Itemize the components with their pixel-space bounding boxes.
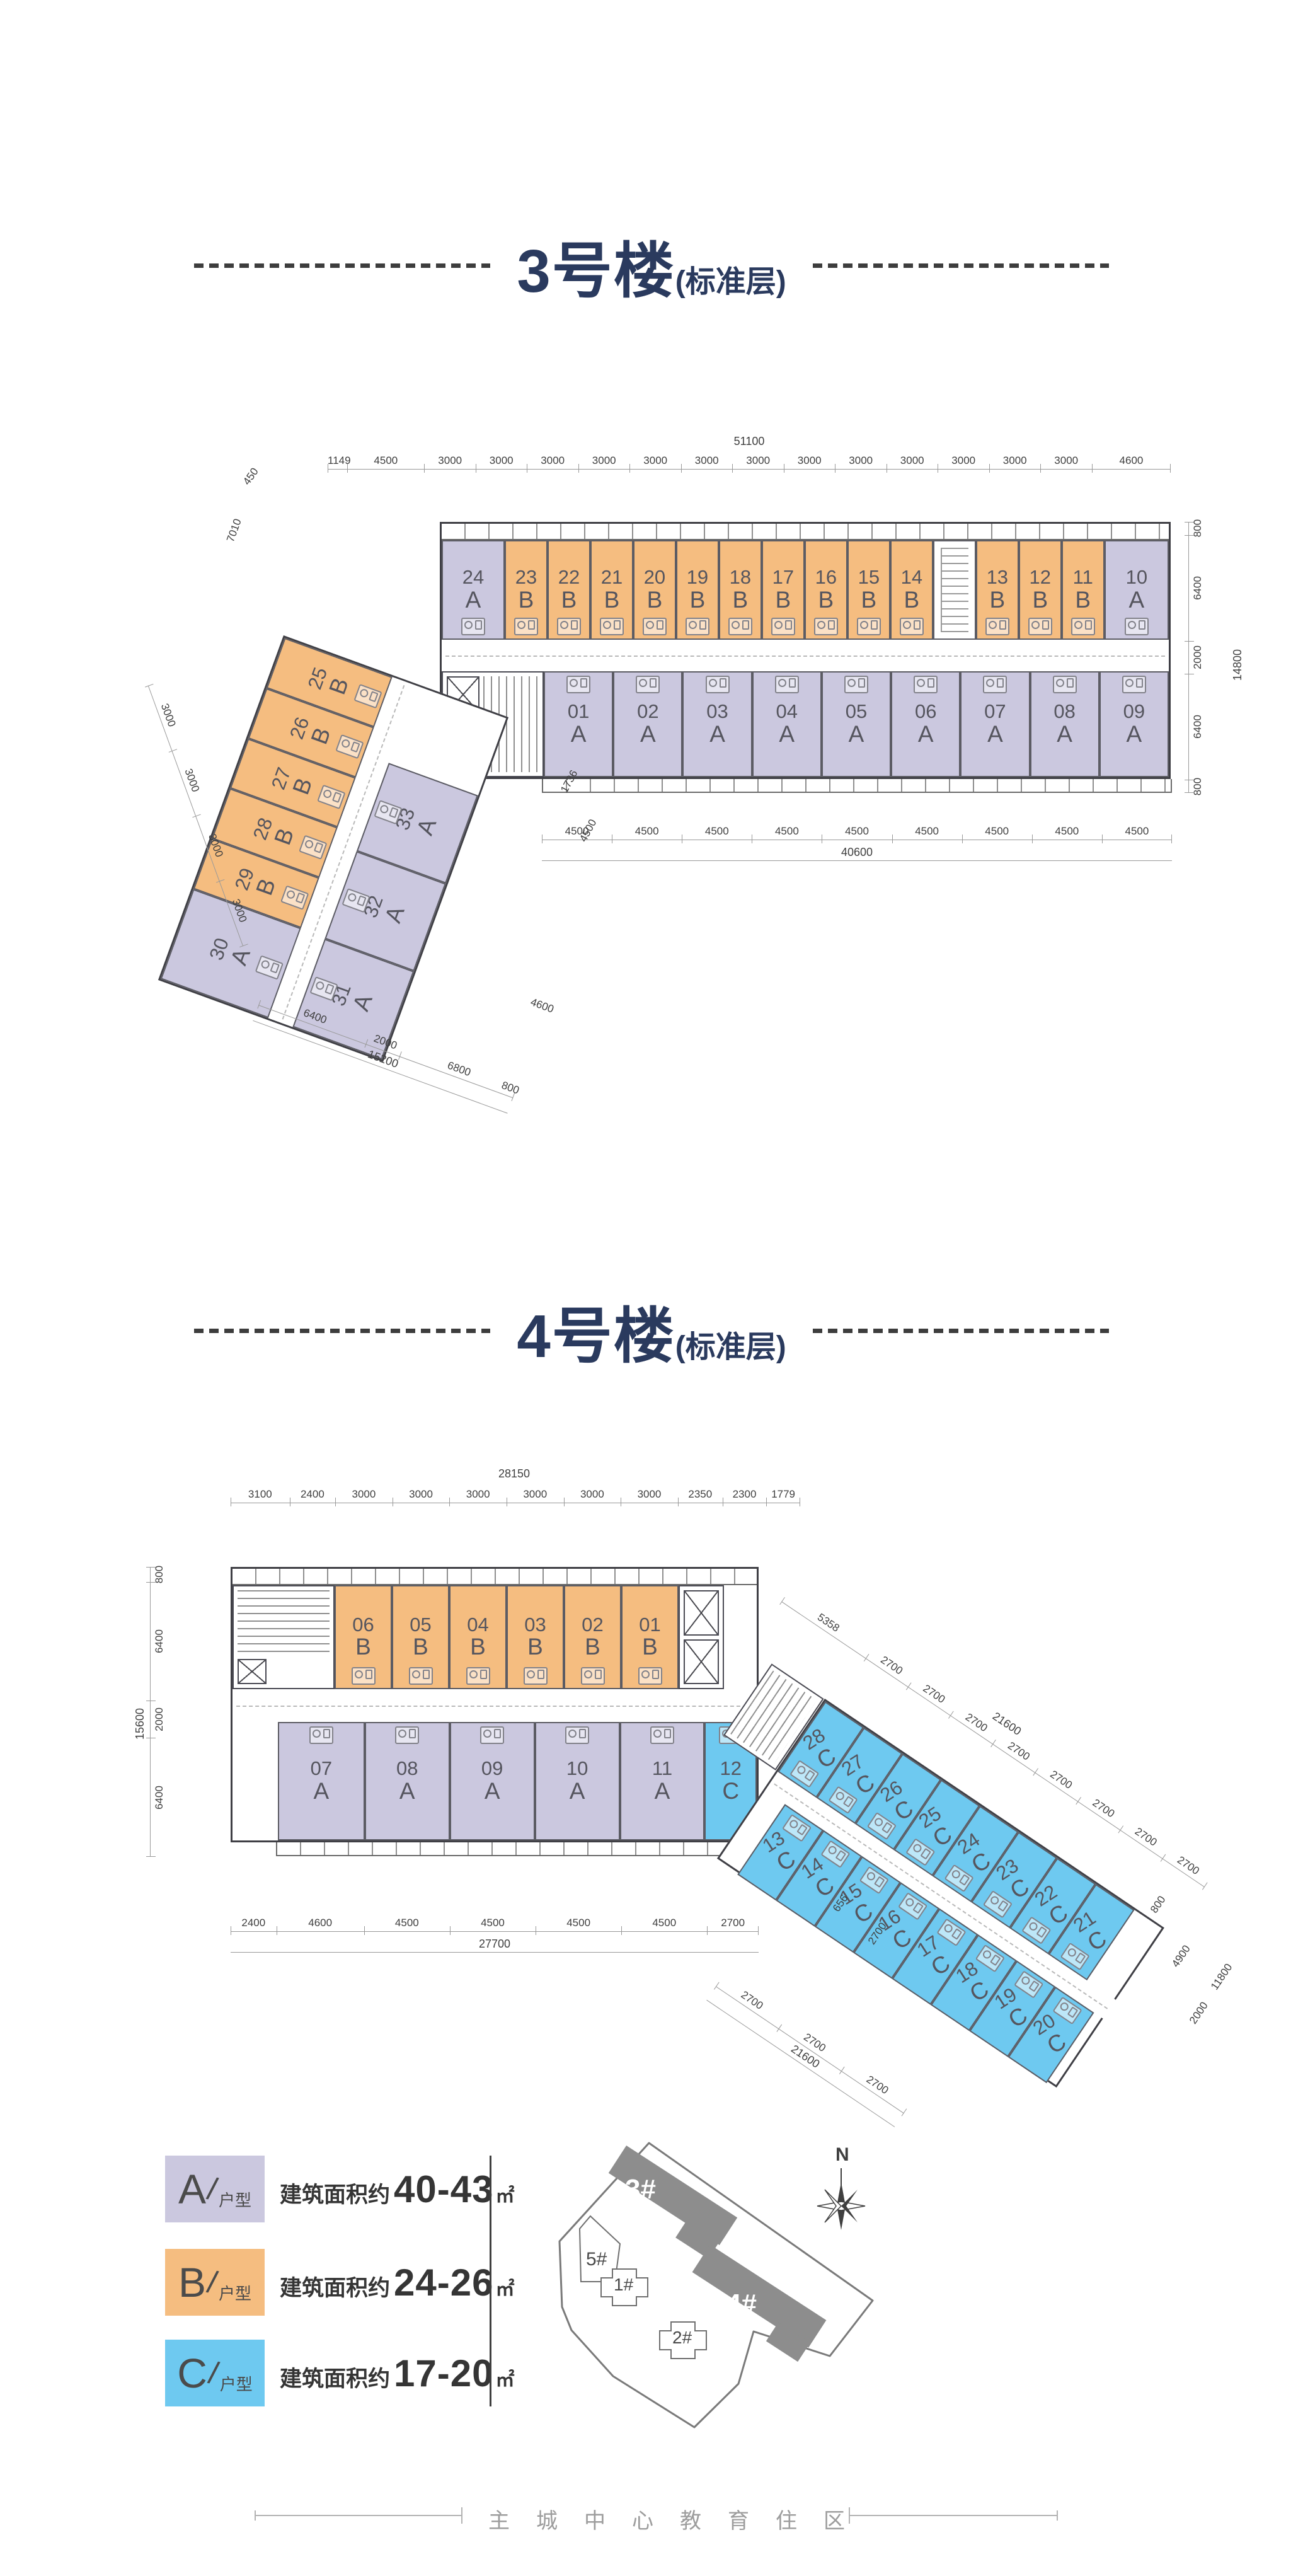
unit-07: 07A	[960, 671, 1030, 777]
title-dash-right	[813, 263, 1109, 268]
dim-label: 2000	[153, 1707, 166, 1731]
unit-number: 23	[515, 567, 537, 588]
building4-title-row: 4号楼 (标准层)	[0, 1287, 1303, 1375]
dim-label: 4500	[892, 825, 962, 840]
dim-label: 2300	[723, 1488, 766, 1503]
unit-type: A	[640, 722, 656, 747]
unit-number: 13	[987, 567, 1008, 588]
unit-08: 08A	[1030, 671, 1099, 777]
dim-label: 800	[1191, 777, 1204, 795]
unit-type: B	[585, 1635, 600, 1660]
dim-label: 3000	[938, 454, 989, 469]
unit-number: 19	[687, 567, 708, 588]
unit-10: 10A	[1105, 540, 1169, 640]
bathroom-icon	[299, 835, 327, 859]
bathroom-icon	[814, 618, 838, 635]
unit-08: 08A	[365, 1722, 450, 1840]
unit-24: 24A	[442, 540, 505, 640]
dim-label: 4600	[277, 1917, 364, 1931]
b3-dim-right: 800640020006400800	[1188, 522, 1207, 793]
legend-unit: ㎡	[495, 2364, 514, 2392]
dim-label: 4500	[682, 825, 752, 840]
legend-suffix: 户型	[219, 2188, 251, 2211]
unit-type: A	[570, 1779, 585, 1804]
unit-number: 06	[915, 702, 936, 722]
unit-type: B	[690, 588, 706, 613]
legend-text-B: 建筑面积约 24-26 ㎡	[280, 2261, 514, 2304]
site-label-3: 3#	[625, 2174, 656, 2205]
dim-label: 3000	[527, 454, 578, 469]
dim-label: 3000	[681, 454, 733, 469]
dim-label: 4500	[536, 1917, 621, 1931]
dim-label: 3000	[732, 454, 784, 469]
bathroom-icon	[1053, 676, 1077, 693]
unit-20: 20B	[633, 540, 676, 640]
b4-dim-top-total: 28150	[231, 1467, 798, 1481]
legend-unit: ㎡	[495, 2180, 514, 2208]
legend-range: 24-26	[394, 2261, 493, 2304]
legend-swatch-A: A / 户型	[165, 2156, 265, 2222]
unit-type: B	[642, 1635, 658, 1660]
unit-03: 03A	[682, 671, 752, 777]
dim-label: 3000	[621, 1488, 678, 1503]
dim-label: 2000	[1191, 645, 1204, 669]
b3-balcony-bottom	[542, 779, 1172, 793]
unit-number: 12	[1030, 567, 1051, 588]
dim-label: 3000	[564, 1488, 621, 1503]
b4-top-units-row: 06B05B04B03B02B01B	[335, 1585, 679, 1689]
bathroom-icon	[900, 618, 924, 635]
bathroom-icon	[775, 676, 799, 693]
building3-title-row: 3号楼 (标准层)	[0, 222, 1303, 309]
bathroom-icon	[317, 785, 345, 809]
dim-label: 4500	[822, 825, 892, 840]
legend-row-A: A / 户型 建筑面积约 40-43 ㎡	[165, 2156, 514, 2222]
bathroom-icon	[255, 955, 284, 979]
floorplan-page: 3号楼 (标准层) 51100 114945003000300030003000…	[0, 0, 1303, 2576]
footer-tick	[1057, 2510, 1058, 2521]
b3-dim-top-total: 51100	[328, 435, 1171, 448]
unit-02: 02A	[613, 671, 682, 777]
unit-number: 06	[352, 1615, 374, 1636]
bathroom-icon	[844, 676, 868, 693]
elevator-icon	[684, 1590, 719, 1636]
bathroom-icon	[650, 1726, 674, 1744]
b4-corridor	[232, 1689, 757, 1722]
site-label-2: 2#	[672, 2328, 692, 2347]
b4-wing-dim-4900: 4900	[1169, 1943, 1193, 1970]
dim-label: 3000	[476, 454, 527, 469]
unit-number: 09	[1123, 702, 1145, 722]
unit-type: B	[252, 875, 280, 898]
dim-label: 3000	[335, 1488, 393, 1503]
legend-suffix: 户型	[220, 2372, 253, 2395]
legend-row-C: C / 户型 建筑面积约 17-20 ㎡	[165, 2340, 514, 2406]
elevator-icon	[238, 1659, 267, 1684]
bathroom-icon	[1071, 618, 1095, 635]
unit-type: B	[1075, 588, 1091, 613]
b4-wing-bottom-total: 21600	[706, 1987, 904, 2127]
b3-balcony-top	[442, 524, 1169, 540]
site-label-1: 1#	[614, 2275, 634, 2294]
unit-type: B	[355, 1635, 371, 1660]
unit-type: A	[1127, 722, 1142, 747]
unit-type: B	[325, 674, 353, 697]
unit-type: B	[733, 588, 749, 613]
legend-letter: B	[178, 2261, 206, 2303]
dim-label: 3000	[449, 1488, 507, 1503]
dim-label: 3000	[507, 1488, 564, 1503]
dim-label: 2350	[678, 1488, 723, 1503]
legend: A / 户型 建筑面积约 40-43 ㎡ B / 户型 建筑面积约 24-26 …	[165, 2156, 514, 2406]
unit-number: 10	[566, 1759, 588, 1779]
dim-label: 4600	[1092, 454, 1171, 469]
legend-letter: A	[178, 2168, 206, 2210]
dim-label: 4500	[364, 1917, 450, 1931]
unit-10: 10A	[535, 1722, 620, 1840]
b3-dim-7010: 7010	[224, 517, 244, 543]
unit-type: A	[655, 1779, 670, 1804]
unit-type: A	[571, 722, 587, 747]
bathroom-icon	[409, 1667, 433, 1685]
footer-line-left	[255, 2515, 462, 2516]
b3-dim-bottom-total: 40600	[542, 846, 1172, 861]
dim-label: 3000	[424, 454, 476, 469]
unit-number: 10	[1126, 567, 1147, 588]
unit-number: 07	[311, 1759, 332, 1779]
north-label: N	[835, 2144, 849, 2165]
unit-type: B	[904, 588, 919, 613]
building4-floor-label: (标准层)	[675, 1322, 786, 1366]
b4-dim-top: 3100240030003000300030003000300023502300…	[231, 1485, 800, 1503]
unit-type: B	[776, 588, 791, 613]
unit-01: 01A	[544, 671, 613, 777]
b4-wing-dim-11800: 11800	[1208, 1961, 1235, 1992]
north-compass-icon	[817, 2168, 865, 2230]
b3-dim-450: 450	[241, 466, 261, 488]
unit-09: 09A	[1099, 671, 1169, 777]
unit-number: 03	[706, 702, 728, 722]
legend-swatch-B: B / 户型	[165, 2249, 265, 2316]
stairs-icon	[238, 1590, 330, 1655]
b4-dim-left: 800640020006400	[150, 1567, 168, 1857]
bathroom-icon	[280, 885, 309, 910]
site-label-5: 5#	[586, 2249, 607, 2270]
unit-type: B	[561, 588, 577, 613]
b4-wing-dims-bottom: 270027002700 21600	[706, 1972, 914, 2127]
unit-type: B	[861, 588, 877, 613]
b3-dim-right-total: 14800	[1231, 649, 1244, 681]
bathroom-icon	[466, 1667, 490, 1685]
unit-04: 04B	[449, 1585, 507, 1689]
unit-type: A	[485, 1779, 500, 1804]
unit-number: 09	[481, 1759, 503, 1779]
site-plan: 3# 4# 5# 1# 2# N	[554, 2135, 895, 2438]
unit-number: 03	[524, 1615, 546, 1636]
bathroom-icon	[581, 1667, 605, 1685]
unit-type: A	[849, 722, 864, 747]
dim-label: 4500	[450, 1917, 536, 1931]
unit-type: A	[226, 945, 255, 968]
b4-wing-bottom-dims: 270027002700	[716, 1972, 914, 2113]
unit-number: 17	[772, 567, 794, 588]
bathroom-icon	[638, 1667, 662, 1685]
unit-number: 11	[1073, 567, 1093, 588]
dim-label: 3000	[1040, 454, 1092, 469]
unit-06: 06A	[891, 671, 960, 777]
building3-title: 3号楼 (标准层)	[517, 222, 786, 309]
unit-number: 04	[776, 702, 798, 722]
unit-type: B	[270, 825, 299, 848]
unit-number: 11	[652, 1759, 672, 1779]
title-dash-right2	[813, 1329, 1109, 1333]
bathroom-icon	[565, 1726, 589, 1744]
bathroom-icon	[728, 618, 752, 635]
b4-balcony-bottom	[276, 1842, 759, 1856]
b3-dim-bottom: 450045004500450045004500450045004500	[542, 822, 1172, 840]
dim-label: 4500	[1032, 825, 1102, 840]
legend-text-C: 建筑面积约 17-20 ㎡	[280, 2352, 514, 2395]
bathroom-icon	[557, 618, 581, 635]
unit-type: B	[1032, 588, 1048, 613]
bathroom-icon	[857, 618, 881, 635]
bathroom-icon	[983, 676, 1007, 693]
unit-type: A	[779, 722, 795, 747]
unit-number: 08	[396, 1759, 418, 1779]
unit-type: A	[413, 815, 441, 838]
bathroom-icon	[706, 676, 730, 693]
title-dash-left2	[194, 1329, 490, 1333]
unit-01: 01B	[621, 1585, 679, 1689]
unit-number: 05	[410, 1615, 431, 1636]
dim-label: 6400	[1191, 715, 1204, 739]
dim-label: 4500	[752, 825, 822, 840]
unit-type: B	[413, 1635, 428, 1660]
unit-number: 18	[730, 567, 751, 588]
bathroom-icon	[985, 618, 1009, 635]
unit-type: B	[307, 725, 335, 748]
b3-top-units-row: 24A23B22B21B20B19B18B17B16B15B14B13B12B1…	[442, 540, 1169, 640]
bathroom-icon	[353, 684, 382, 708]
unit-type: A	[918, 722, 934, 747]
unit-type: B	[818, 588, 834, 613]
unit-05: 05A	[822, 671, 891, 777]
unit-number: 07	[984, 702, 1006, 722]
dim-label: 2400	[290, 1488, 335, 1503]
legend-row-B: B / 户型 建筑面积约 24-26 ㎡	[165, 2249, 514, 2316]
unit-number: 20	[644, 567, 665, 588]
dim-label: 800	[153, 1566, 166, 1583]
unit-14: 14B	[890, 540, 933, 640]
dim-label: 6400	[153, 1786, 166, 1810]
b4-wing-dim-2000: 2000	[1187, 2000, 1211, 2027]
dim-label: 4500	[1102, 825, 1172, 840]
unit-number: 22	[558, 567, 580, 588]
legend-range: 17-20	[394, 2352, 493, 2395]
bathroom-icon	[309, 1726, 333, 1744]
b4-dim-left-total: 15600	[134, 1708, 147, 1740]
unit-number: 05	[846, 702, 867, 722]
bathroom-icon	[524, 1667, 548, 1685]
bathroom-icon	[514, 618, 538, 635]
building4-name: 4号楼	[517, 1287, 675, 1375]
bathroom-icon	[566, 676, 590, 693]
unit-number: 16	[815, 567, 837, 588]
unit-03: 03B	[507, 1585, 564, 1689]
unit-type: B	[604, 588, 620, 613]
legend-letter: C	[177, 2352, 207, 2394]
unit-type: B	[519, 588, 534, 613]
building3-floor-label: (标准层)	[675, 257, 786, 301]
building4-main-bar: 06B05B04B03B02B01B 07A08A09A10A11A12C	[231, 1567, 759, 1842]
dim-label: 4500	[347, 454, 424, 469]
unit-number: 08	[1053, 702, 1075, 722]
unit-number: 14	[901, 567, 922, 588]
footer-line-right	[850, 2515, 1058, 2516]
dim-label: 4500	[621, 1917, 707, 1931]
bathroom-icon	[395, 1726, 419, 1744]
dim-label: 6400	[1191, 576, 1204, 600]
unit-05: 05B	[392, 1585, 449, 1689]
footer-tick	[255, 2510, 256, 2521]
unit-number: 24	[462, 567, 484, 588]
unit-02: 02B	[564, 1585, 621, 1689]
unit-number: 12	[720, 1759, 741, 1779]
unit-type: A	[987, 722, 1003, 747]
dim-label: 3000	[149, 681, 186, 751]
dim-label: 3000	[784, 454, 835, 469]
legend-divider	[490, 2156, 491, 2406]
dim-label: 3000	[887, 454, 938, 469]
b4-balcony-top	[232, 1569, 757, 1585]
unit-09: 09A	[450, 1722, 535, 1840]
unit-type: A	[709, 722, 725, 747]
unit-18: 18B	[719, 540, 762, 640]
bathroom-icon	[600, 618, 624, 635]
dim-label: 3000	[989, 454, 1041, 469]
b4-elevator-bank	[679, 1585, 724, 1689]
unit-type: A	[349, 991, 377, 1014]
unit-06: 06B	[335, 1585, 392, 1689]
b4-wing-dim-800: 800	[1148, 1893, 1168, 1915]
unit-12: 12B	[1019, 540, 1062, 640]
unit-07: 07A	[278, 1722, 365, 1840]
unit-11: 11B	[1062, 540, 1105, 640]
unit-number: 02	[637, 702, 658, 722]
unit-number: 04	[467, 1615, 488, 1636]
unit-number: 02	[582, 1615, 603, 1636]
bathroom-icon	[1028, 618, 1052, 635]
bathroom-icon	[461, 618, 485, 635]
dim-label: 2700	[707, 1917, 759, 1931]
bathroom-icon	[636, 676, 660, 693]
unit-number: 01	[639, 1615, 660, 1636]
unit-13: 13B	[976, 540, 1019, 640]
bathroom-icon	[352, 1667, 376, 1685]
dim-label: 3000	[835, 454, 887, 469]
building4-title: 4号楼 (标准层)	[517, 1287, 786, 1375]
bathroom-icon	[1125, 618, 1149, 635]
dim-label: 3000	[172, 746, 209, 816]
unit-15: 15B	[847, 540, 890, 640]
unit-type: A	[314, 1779, 330, 1804]
legend-range: 40-43	[394, 2168, 493, 2211]
legend-prefix: 建筑面积约	[280, 2270, 390, 2302]
dim-label: 6400	[153, 1629, 166, 1653]
site-label-4: 4#	[726, 2289, 757, 2319]
b3-corridor	[442, 640, 1169, 671]
unit-type: A	[1057, 722, 1072, 747]
unit-type: B	[289, 775, 317, 797]
unit-22: 22B	[548, 540, 590, 640]
elevator-icon	[684, 1639, 719, 1685]
unit-type: B	[989, 588, 1005, 613]
unit-17: 17B	[762, 540, 805, 640]
dim-label: 1779	[766, 1488, 800, 1503]
unit-04: 04A	[752, 671, 822, 777]
unit-type: A	[399, 1779, 415, 1804]
dim-label: 1149	[328, 454, 347, 469]
b4-dim-bottom-total: 27700	[231, 1938, 759, 1953]
legend-text-A: 建筑面积约 40-43 ㎡	[280, 2168, 514, 2211]
b3-bottom-units-row: 01A02A03A04A05A06A07A08A09A	[544, 671, 1169, 777]
b3-dim-4600: 4600	[529, 996, 555, 1016]
unit-type: B	[647, 588, 663, 613]
dim-label: 3100	[231, 1488, 290, 1503]
unit-number: 21	[601, 567, 623, 588]
b4-core-stairwell	[232, 1585, 335, 1689]
legend-suffix: 户型	[219, 2281, 251, 2304]
legend-unit: ㎡	[495, 2273, 514, 2301]
bathroom-icon	[643, 618, 667, 635]
unit-23: 23B	[505, 540, 548, 640]
stairs-icon	[941, 548, 968, 632]
unit-number: 15	[858, 567, 880, 588]
bathroom-icon	[480, 1726, 504, 1744]
unit-type: A	[1128, 588, 1144, 613]
bathroom-icon	[335, 734, 364, 759]
footer-slogan: 主城中心教育住区	[488, 2504, 871, 2534]
dim-label: 4500	[962, 825, 1032, 840]
dim-label: 3000	[629, 454, 681, 469]
b4-dim-bottom: 2400460045004500450045002700	[231, 1914, 759, 1932]
building3-main-bar: 24A23B22B21B20B19B18B17B16B15B14B13B12B1…	[440, 522, 1171, 779]
legend-prefix: 建筑面积约	[280, 2361, 390, 2393]
b3-dim-top: 1149450030003000300030003000300030003000…	[328, 451, 1171, 470]
unit-type: B	[470, 1635, 486, 1660]
b4-bottom-units-row: 07A08A09A10A11A12C	[278, 1722, 757, 1840]
unit-type: A	[466, 588, 481, 613]
dim-label: 3000	[578, 454, 630, 469]
unit-21: 21B	[590, 540, 633, 640]
stairwell	[933, 540, 976, 640]
bathroom-icon	[686, 618, 709, 635]
title-dash-left	[194, 263, 490, 268]
unit-type: A	[381, 903, 410, 926]
unit-19: 19B	[676, 540, 719, 640]
unit-number: 01	[568, 702, 589, 722]
building3-name: 3号楼	[517, 222, 675, 309]
legend-swatch-C: C / 户型	[165, 2340, 265, 2406]
legend-prefix: 建筑面积约	[280, 2177, 390, 2209]
bathroom-icon	[771, 618, 795, 635]
dim-label: 3000	[393, 1488, 450, 1503]
unit-16: 16B	[805, 540, 847, 640]
footer-tick	[461, 2507, 462, 2524]
dim-label: 4500	[612, 825, 682, 840]
bathroom-icon	[914, 676, 938, 693]
unit-11: 11A	[620, 1722, 705, 1840]
